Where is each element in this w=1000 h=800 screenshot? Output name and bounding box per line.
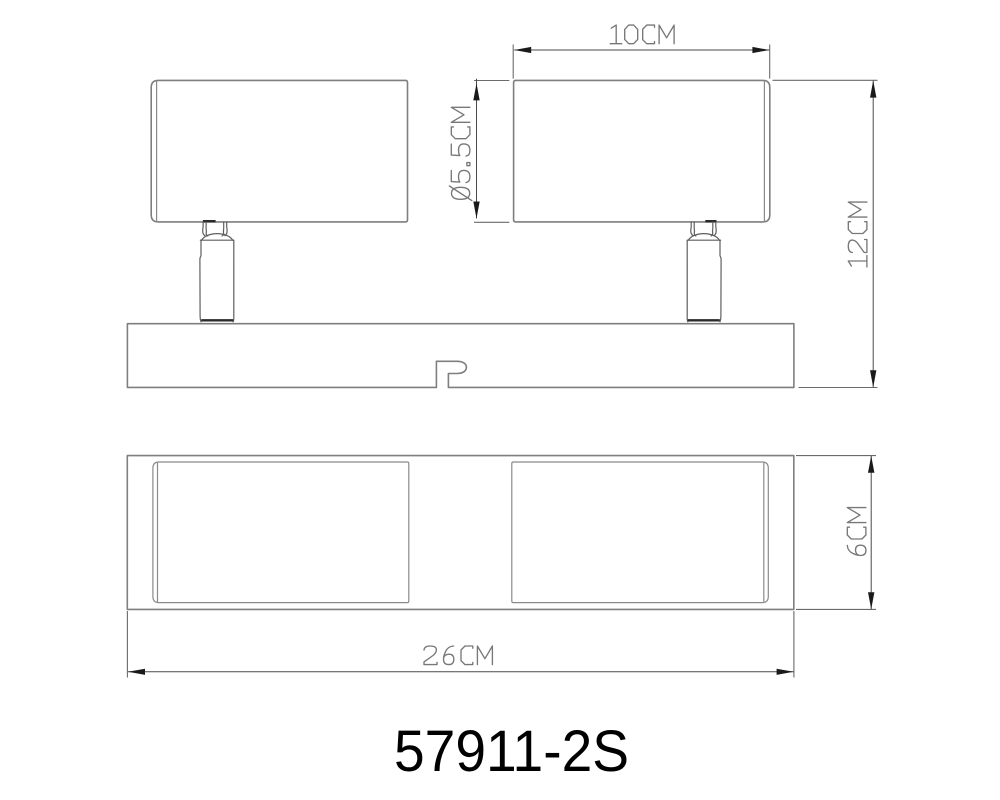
svg-text:57911-2S: 57911-2S xyxy=(394,719,629,784)
